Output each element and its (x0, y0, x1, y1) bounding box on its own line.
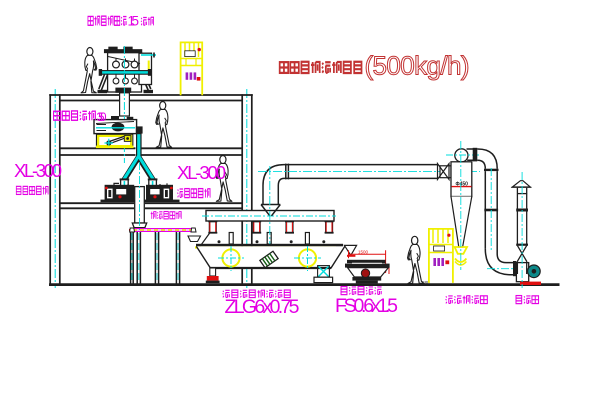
svg-text:XL-300: XL-300 (14, 160, 62, 181)
svg-text:350: 350 (97, 112, 107, 124)
svg-text:FS0.6x1.5: FS0.6x1.5 (335, 295, 398, 317)
svg-text:XL-300: XL-300 (177, 162, 226, 183)
svg-text:Φ450: Φ450 (456, 182, 469, 188)
svg-text:(500kg/h): (500kg/h) (365, 51, 470, 81)
svg-text:ZLG6x0.75: ZLG6x0.75 (225, 296, 300, 318)
svg-text:1.5: 1.5 (128, 14, 140, 29)
svg-text:1500: 1500 (358, 249, 369, 254)
